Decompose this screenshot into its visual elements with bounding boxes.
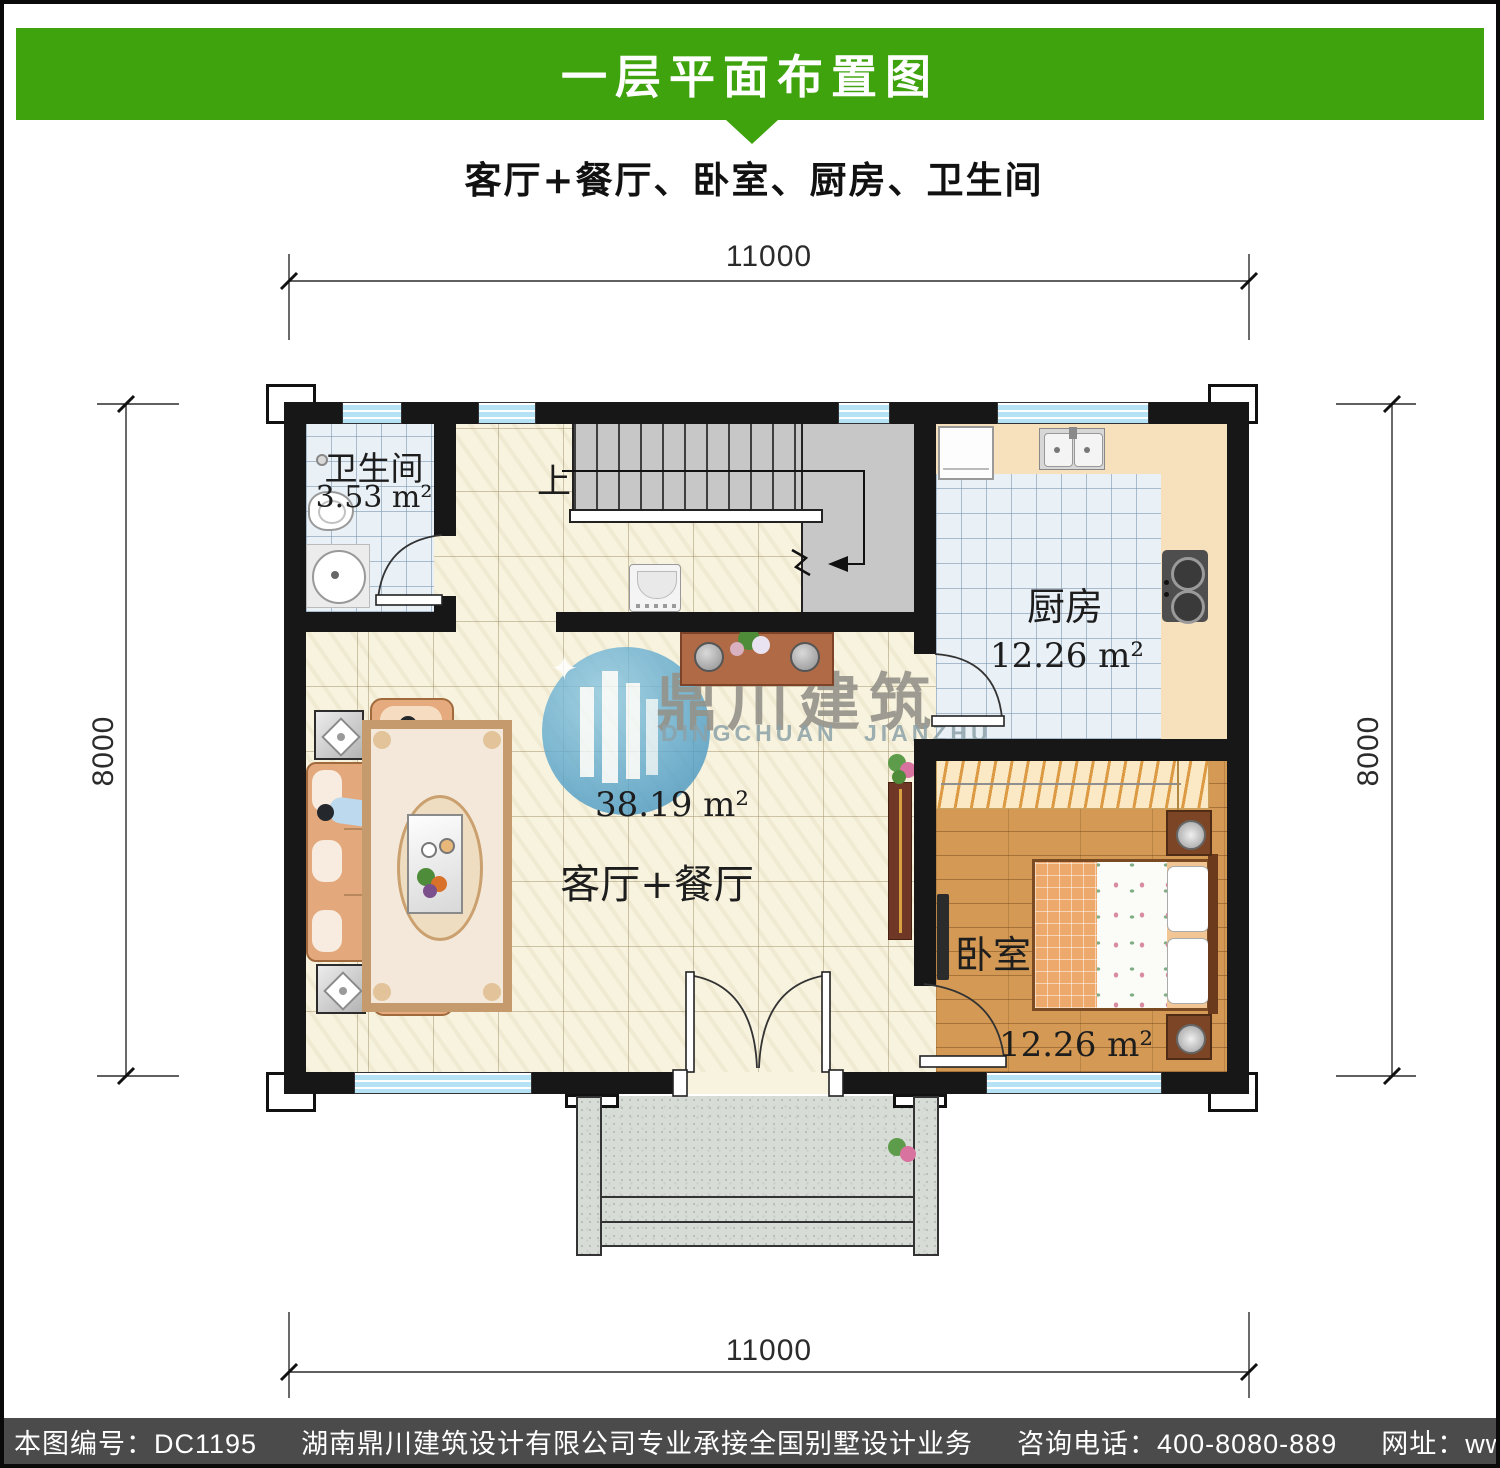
pillow <box>1167 938 1209 1004</box>
carpet-rosette <box>483 731 501 749</box>
table-lamp <box>1176 820 1206 850</box>
plant-flowers <box>900 1146 916 1162</box>
potted-plant <box>886 1136 920 1176</box>
dimension-top: 11000 <box>694 240 844 274</box>
nightstand <box>1166 1014 1212 1060</box>
tv-cabinet <box>888 782 912 940</box>
wardrobe-rod <box>941 783 1181 785</box>
gas-stove <box>1162 550 1208 622</box>
floor-plan-sheet: 一层平面布置图 客厅+餐厅、卧室、厨房、卫生间 ✦ 鼎川建筑 DINGCHUAN… <box>0 0 1500 1468</box>
lamp-finial <box>339 987 347 995</box>
double-bed <box>1032 859 1210 1011</box>
flower-decoration <box>752 636 770 654</box>
window-living-room <box>354 1072 532 1094</box>
sofa-pillow <box>312 910 342 952</box>
window-stair-landing <box>838 402 890 424</box>
footer-bar: 本图编号：DC1195 湖南鼎川建筑设计有限公司专业承接全国别墅设计业务 咨询电… <box>4 1418 1500 1464</box>
wall-exterior-left <box>284 402 306 1094</box>
corner-lamp-table <box>314 710 364 760</box>
kitchen-sink <box>1039 428 1105 470</box>
stove-burner <box>1171 557 1205 591</box>
stove-knob <box>1164 592 1169 597</box>
window-hall <box>478 402 536 424</box>
footer-company: 湖南鼎川建筑设计有限公司专业承接全国别墅设计业务 <box>301 1422 973 1461</box>
kitchen-area-label: 12.26 m² <box>987 636 1147 676</box>
sofa-pillow <box>312 840 342 882</box>
footer-website: 网址：www.bstzcs.com <box>1381 1422 1500 1461</box>
wall-exterior-right <box>1227 402 1249 1094</box>
dimension-left: 8000 <box>87 676 121 826</box>
kitchen-name-label: 厨房 <box>995 576 1135 631</box>
corner-lamp-table <box>316 964 366 1014</box>
bedroom-name-label: 卧室 <box>933 924 1053 979</box>
washing-machine-controls <box>636 604 676 608</box>
bed-duvet <box>1097 862 1167 1008</box>
entrance-threshold <box>677 1072 839 1094</box>
footer-sheet-number: 本图编号：DC1195 <box>14 1422 257 1461</box>
porch-column-left <box>576 1096 602 1256</box>
vase <box>694 642 724 672</box>
room-summary-subtitle: 客厅+餐厅、卧室、厨房、卫生间 <box>4 150 1500 204</box>
living-area-label: 38.19 m² <box>592 785 752 825</box>
carpet-rosette <box>373 731 391 749</box>
living-name-label: 客厅+餐厅 <box>557 852 757 910</box>
stair-landing <box>801 420 916 616</box>
table-lamp <box>1176 1024 1206 1054</box>
dimension-bottom: 11000 <box>694 1334 844 1368</box>
stair-treads <box>572 420 804 516</box>
basin-drain <box>331 571 339 579</box>
carpet-rosette <box>373 983 391 1001</box>
bed-headboard <box>1208 854 1218 1014</box>
logo-building-bar-icon <box>580 687 594 777</box>
window-kitchen <box>997 402 1149 424</box>
flower-decoration <box>730 642 744 656</box>
stair-up-label: 上 <box>534 454 574 503</box>
sparkle-icon: ✦ <box>550 649 579 689</box>
wash-basin <box>312 550 366 604</box>
dimension-right: 8000 <box>1352 676 1386 826</box>
console-sideboard <box>680 632 834 686</box>
porch-step-edge-2 <box>600 1221 916 1223</box>
fridge-door-line <box>943 468 989 470</box>
footer-phone: 咨询电话：400-8080-889 <box>1017 1422 1337 1461</box>
tv-cabinet-trim <box>899 789 902 933</box>
porch-step-edge-3 <box>600 1245 916 1247</box>
pillow <box>1167 866 1209 932</box>
wardrobe-divider <box>1177 758 1179 810</box>
coffee-table <box>407 814 463 914</box>
wall-hall-bottom <box>556 612 914 632</box>
sink-drain <box>1084 447 1090 453</box>
porch-column-right <box>913 1096 939 1256</box>
wall-bedroom-top <box>914 739 1227 761</box>
nightstand <box>1166 810 1212 856</box>
title-bar: 一层平面布置图 <box>16 28 1484 120</box>
title-pointer-triangle <box>726 120 778 144</box>
wardrobe <box>936 757 1209 809</box>
logo-building-bar-icon <box>602 671 618 783</box>
washing-machine <box>629 564 681 612</box>
page-title: 一层平面布置图 <box>561 41 939 107</box>
porch-step-edge-1 <box>600 1196 916 1198</box>
window-bedroom <box>986 1072 1162 1094</box>
flower-decoration <box>423 884 437 898</box>
wall-bathroom-bottom <box>306 612 456 632</box>
lamp-finial <box>337 733 345 741</box>
faucet <box>1069 427 1077 439</box>
plant-leaves <box>892 770 906 784</box>
washing-machine-door <box>637 571 677 599</box>
teacup <box>421 842 437 858</box>
carpet-rosette <box>483 983 501 1001</box>
entry-porch-slab <box>578 1096 937 1247</box>
person-head <box>317 804 334 821</box>
wall-kitchen-left <box>914 424 936 654</box>
teacup <box>439 838 455 854</box>
sink-drain <box>1054 447 1060 453</box>
vanity-counter <box>306 544 370 608</box>
stove-burner <box>1171 590 1205 624</box>
bathroom-area-label: 3.53 m² <box>304 480 444 515</box>
window-bathroom <box>342 402 402 424</box>
refrigerator <box>938 426 994 480</box>
stove-knob <box>1164 580 1169 585</box>
bedroom-area-label: 12.26 m² <box>996 1025 1156 1065</box>
vase <box>790 642 820 672</box>
logo-building-bar-icon <box>626 683 640 779</box>
